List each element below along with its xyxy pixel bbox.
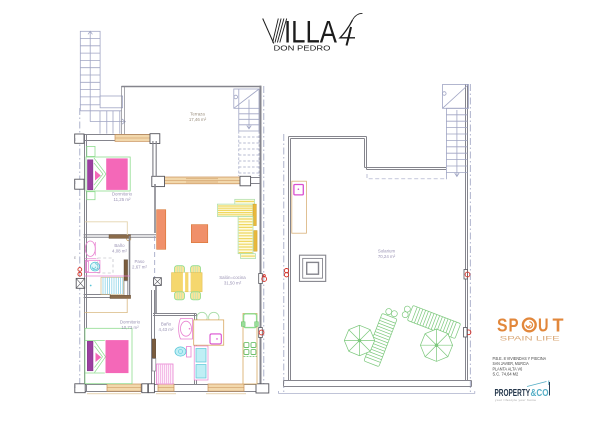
svg-text:11,25 m²: 11,25 m²: [113, 197, 131, 202]
svg-text:SAN JAVIER, MURCIA: SAN JAVIER, MURCIA: [493, 361, 530, 367]
svg-text:Terraza: Terraza: [190, 112, 205, 117]
svg-text:Dormitorio: Dormitorio: [112, 192, 133, 197]
svg-text:Baño: Baño: [114, 243, 125, 248]
svg-text:E: E: [74, 181, 76, 185]
svg-text:31,50 m²: 31,50 m²: [224, 281, 242, 286]
svg-text:Baño: Baño: [161, 322, 172, 327]
svg-text:ILLA: ILLA: [284, 14, 337, 50]
svg-text:S.C. 74,64 M2: S.C. 74,64 M2: [493, 372, 519, 378]
svg-text:P: P: [509, 315, 519, 336]
svg-text:T: T: [553, 315, 565, 336]
svg-text:S: S: [497, 315, 508, 336]
svg-text:DON PEDRO: DON PEDRO: [274, 46, 332, 53]
svg-text:Dormitorio: Dormitorio: [120, 320, 141, 325]
svg-text:Solarium: Solarium: [378, 249, 396, 254]
svg-text:17,46 m²: 17,46 m²: [189, 117, 207, 122]
svg-text:70,24 m²: 70,24 m²: [378, 254, 396, 259]
svg-text:10,73 m²: 10,73 m²: [121, 325, 139, 330]
svg-text:Salón=cocina: Salón=cocina: [219, 275, 246, 280]
svg-text:U: U: [538, 315, 549, 336]
svg-text:E: E: [74, 256, 76, 260]
svg-text:PLANTA ALTA V6: PLANTA ALTA V6: [493, 366, 523, 372]
svg-text:E: E: [74, 385, 76, 389]
svg-text:4,08 m²: 4,08 m²: [112, 248, 127, 253]
svg-text:E: E: [74, 138, 76, 142]
svg-text:P.B.E. 8 VIVIENDAS Y PISCINA: P.B.E. 8 VIVIENDAS Y PISCINA: [493, 356, 547, 362]
svg-text:4,43 m²: 4,43 m²: [159, 327, 174, 332]
svg-text:SPAIN LIFE: SPAIN LIFE: [500, 335, 560, 342]
svg-text:your lifestyle your home: your lifestyle your home: [495, 398, 536, 402]
svg-text:2,67 m²: 2,67 m²: [132, 265, 147, 270]
svg-text:Paso: Paso: [134, 259, 145, 264]
